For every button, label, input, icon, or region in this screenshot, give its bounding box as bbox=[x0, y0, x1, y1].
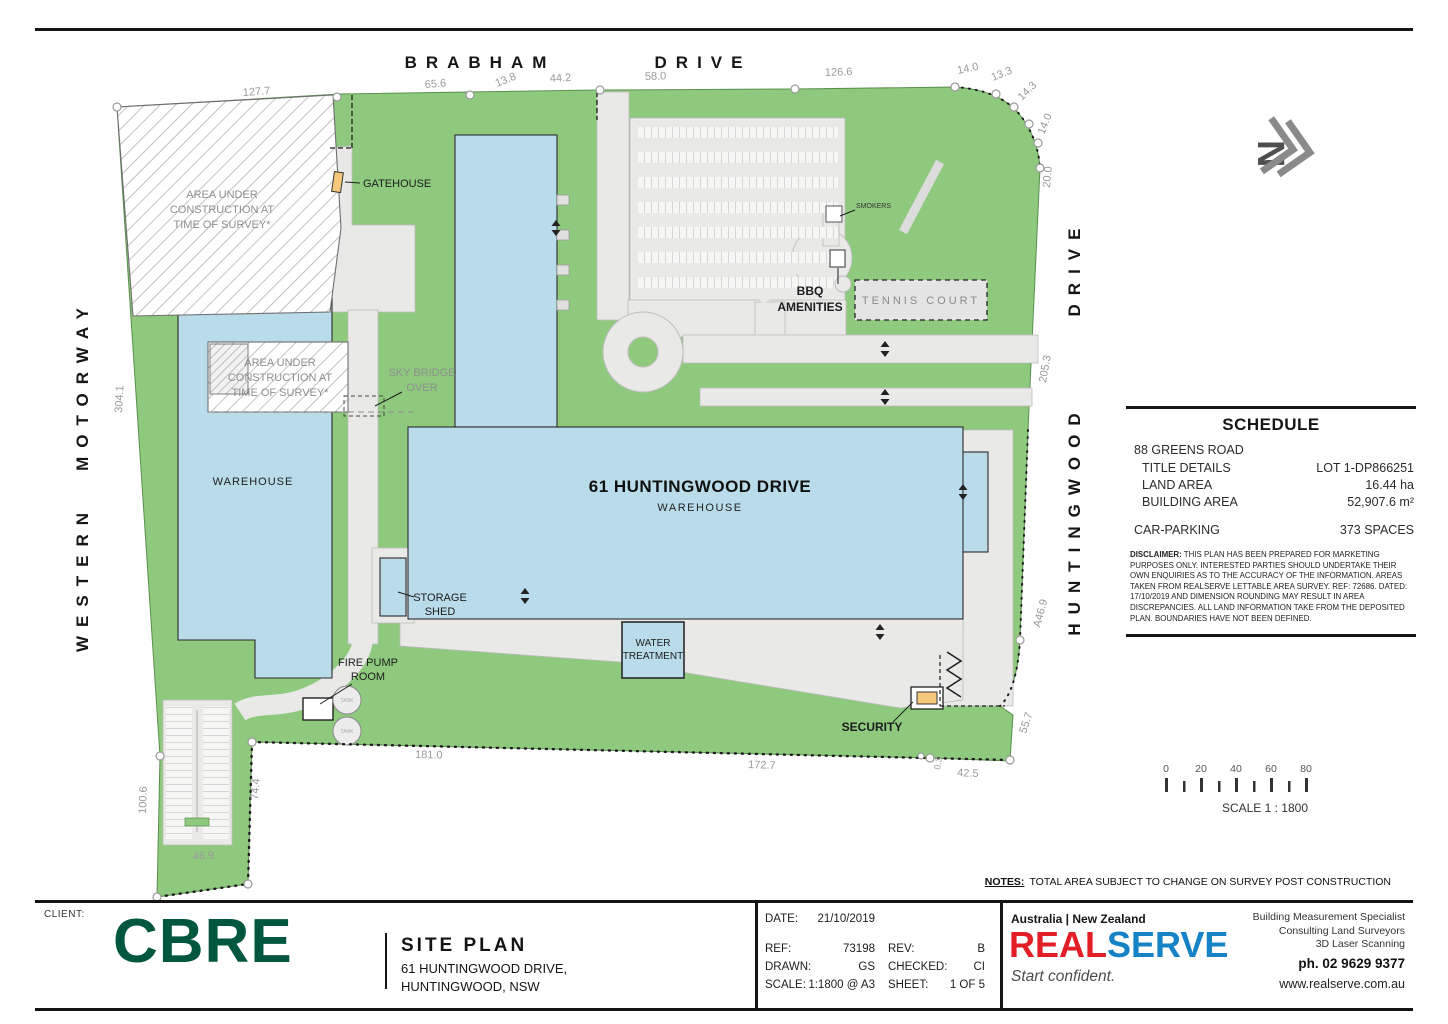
construction2-line1: AREA UNDER bbox=[244, 357, 316, 369]
fire-pump-room-shape bbox=[303, 698, 333, 720]
scale-tick-60: 60 bbox=[1265, 763, 1277, 775]
schedule-disclaimer: DISCLAIMER: THIS PLAN HAS BEEN PREPARED … bbox=[1128, 550, 1414, 624]
schedule-row-label: LAND AREA bbox=[1142, 477, 1212, 494]
dim-0-3: 0.3 bbox=[932, 756, 944, 770]
schedule-row-car-parking: CAR-PARKING 373 SPACES bbox=[1128, 523, 1414, 537]
street-motorway: MOTORWAY bbox=[73, 299, 92, 471]
drawn-value: GS bbox=[793, 961, 875, 973]
tank-label-1: TANK bbox=[341, 698, 355, 704]
street-huntingwood: HUNTINGWOOD bbox=[1065, 404, 1084, 635]
realserve-service-2: Consulting Land Surveyors bbox=[1253, 925, 1405, 939]
realserve-service-3: 3D Laser Scanning bbox=[1253, 938, 1405, 952]
storage-shed-label-2: SHED bbox=[425, 606, 456, 618]
schedule-row-building-area: BUILDING AREA 52,907.6 m² bbox=[1128, 494, 1414, 511]
construction2-line3: TIME OF SURVEY* bbox=[232, 387, 330, 399]
tank-label-2: TANK bbox=[341, 729, 355, 735]
scale-tick-0: 0 bbox=[1163, 763, 1169, 775]
divider bbox=[385, 933, 387, 989]
dim-100-6: 100.6 bbox=[137, 786, 150, 814]
parking-bottom-left bbox=[166, 706, 229, 839]
dim-42-5: 42.5 bbox=[957, 767, 979, 780]
schedule-panel: SCHEDULE 88 GREENS ROAD TITLE DETAILS LO… bbox=[1126, 406, 1416, 637]
roundabout bbox=[603, 312, 683, 392]
dim-181-0: 181.0 bbox=[415, 749, 443, 761]
realserve-tagline: Start confident. bbox=[1011, 968, 1115, 986]
sky-bridge-label-1: SKY BRIDGE bbox=[388, 367, 455, 379]
dim-20-0: 20.0 bbox=[1041, 166, 1055, 188]
dim-205-3: 205.3 bbox=[1037, 354, 1054, 383]
bbq-label-1: BBQ bbox=[797, 284, 824, 298]
construction2-line2: CONSTRUCTION AT bbox=[228, 372, 333, 384]
client-label: CLIENT: bbox=[44, 909, 85, 920]
date-value: 21/10/2019 bbox=[793, 913, 875, 925]
sky-bridge-label-2: OVER bbox=[406, 382, 437, 394]
dim-126-6: 126.6 bbox=[825, 66, 853, 79]
realserve-logo-real: REAL bbox=[1009, 924, 1107, 965]
scale-field-value: 1:1800 @ A3 bbox=[793, 979, 875, 991]
schedule-row-title-details: TITLE DETAILS LOT 1-DP866251 bbox=[1128, 460, 1414, 477]
bbq-label-2: AMENITIES bbox=[777, 300, 842, 314]
dim-46-9: 46.9 bbox=[192, 850, 214, 863]
divider bbox=[1000, 903, 1003, 1008]
scale-tick-20: 20 bbox=[1195, 763, 1207, 775]
street-brabham: BRABHAM bbox=[405, 53, 556, 72]
schedule-row-label: TITLE DETAILS bbox=[1142, 460, 1231, 477]
security-label: SECURITY bbox=[842, 720, 903, 734]
sheet-value: 1 OF 5 bbox=[915, 979, 985, 991]
scale-label: SCALE 1 : 1800 bbox=[1222, 801, 1308, 815]
rev-label: REV: bbox=[888, 943, 914, 955]
dim-172-7: 172.7 bbox=[748, 759, 776, 772]
ref-label: REF: bbox=[765, 943, 791, 955]
dim-127-7: 127.7 bbox=[242, 85, 270, 99]
tennis-court-label: TENNIS COURT bbox=[862, 295, 980, 307]
north-arrow-icon: N bbox=[1249, 118, 1315, 179]
dim-55-7: 55.7 bbox=[1017, 711, 1035, 735]
fire-pump-label-1: FIRE PUMP bbox=[338, 657, 398, 669]
realserve-phone: ph. 02 9629 9377 bbox=[1298, 956, 1405, 971]
realserve-services: Building Measurement Specialist Consulti… bbox=[1253, 911, 1405, 952]
storage-shed-shape bbox=[380, 558, 406, 616]
checked-value: CI bbox=[915, 961, 985, 973]
schedule-parking-value: 373 SPACES bbox=[1340, 523, 1414, 537]
schedule-row-value: 16.44 ha bbox=[1365, 477, 1414, 494]
notes-label: NOTES: bbox=[985, 876, 1025, 888]
disclaimer-label: DISCLAIMER: bbox=[1130, 550, 1182, 559]
plan-address-2: HUNTINGWOOD, NSW bbox=[401, 979, 540, 994]
realserve-website: www.realserve.com.au bbox=[1279, 977, 1405, 991]
dim-74-4: 74.4 bbox=[249, 778, 262, 800]
smokers-shape bbox=[826, 206, 842, 222]
notes-line: NOTES:TOTAL AREA SUBJECT TO CHANGE ON SU… bbox=[985, 876, 1391, 888]
schedule-row-land-area: LAND AREA 16.44 ha bbox=[1128, 477, 1414, 494]
schedule-title: SCHEDULE bbox=[1128, 415, 1414, 435]
dim-13-8: 13.8 bbox=[494, 71, 518, 90]
ref-value: 73198 bbox=[793, 943, 875, 955]
schedule-row-value: LOT 1-DP866251 bbox=[1316, 460, 1414, 477]
street-western: WESTERN bbox=[73, 504, 92, 652]
dim-14-3: 14.3 bbox=[1016, 79, 1040, 103]
divider bbox=[755, 903, 758, 1008]
fire-pump-label-2: ROOM bbox=[351, 671, 385, 683]
rev-value: B bbox=[915, 943, 985, 955]
dim-44-2: 44.2 bbox=[550, 72, 572, 85]
dim-58-0: 58.0 bbox=[645, 70, 667, 83]
schedule-row-value: 52,907.6 m² bbox=[1347, 494, 1414, 511]
main-warehouse-wing bbox=[455, 135, 557, 427]
notes-text: TOTAL AREA SUBJECT TO CHANGE ON SURVEY P… bbox=[1029, 876, 1391, 888]
dim-65-6: 65.6 bbox=[424, 78, 446, 91]
main-warehouse-shape bbox=[408, 427, 963, 619]
disclaimer-text: THIS PLAN HAS BEEN PREPARED FOR MARKETIN… bbox=[1130, 550, 1407, 623]
construction1-line1: AREA UNDER bbox=[186, 189, 258, 201]
left-warehouse-label: WAREHOUSE bbox=[213, 476, 294, 488]
construction1-line2: CONSTRUCTION AT bbox=[170, 204, 275, 216]
realserve-logo-serve: SERVE bbox=[1107, 924, 1228, 965]
storage-shed-label-1: STORAGE bbox=[413, 592, 467, 604]
realserve-service-1: Building Measurement Specialist bbox=[1253, 911, 1405, 925]
street-drive-right: DRIVE bbox=[1065, 220, 1084, 317]
water-treatment-label-2: TREATMENT bbox=[623, 651, 683, 662]
main-building-title: 61 HUNTINGWOOD DRIVE bbox=[589, 477, 812, 496]
schedule-parking-label: CAR-PARKING bbox=[1134, 523, 1220, 537]
security-shape bbox=[911, 687, 943, 709]
cbre-logo: CBRE bbox=[113, 911, 293, 973]
schedule-row-label: BUILDING AREA bbox=[1142, 494, 1238, 511]
realserve-logo: REALSERVE bbox=[1009, 927, 1228, 963]
dim-304-1: 304.1 bbox=[113, 385, 126, 413]
main-warehouse-east-bump bbox=[960, 452, 988, 552]
scale-tick-80: 80 bbox=[1300, 763, 1312, 775]
smokers-label: SMOKERS bbox=[856, 203, 891, 210]
schedule-address: 88 GREENS ROAD bbox=[1134, 443, 1414, 457]
dim-14-0a: 14.0 bbox=[956, 61, 979, 77]
dim-13-3: 13.3 bbox=[990, 65, 1014, 84]
dim-A46-9: A46.9 bbox=[1031, 598, 1050, 629]
gatehouse-label: GATEHOUSE bbox=[363, 178, 431, 190]
dim-14-0b: 14.0 bbox=[1036, 112, 1055, 136]
water-treatment-shape bbox=[622, 622, 684, 678]
plan-title: SITE PLAN bbox=[401, 935, 527, 957]
construction1-line3: TIME OF SURVEY* bbox=[174, 219, 272, 231]
main-building-subtitle: WAREHOUSE bbox=[657, 502, 742, 514]
scale-bar: 0 20 40 60 80 SCALE 1 : 1800 bbox=[1163, 763, 1312, 815]
water-treatment-label-1: WATER bbox=[636, 638, 671, 649]
plan-address-1: 61 HUNTINGWOOD DRIVE, bbox=[401, 961, 567, 976]
title-block: CLIENT: CBRE SITE PLAN 61 HUNTINGWOOD DR… bbox=[35, 900, 1413, 1011]
scale-tick-40: 40 bbox=[1230, 763, 1242, 775]
site-plan-document: TANK TANK bbox=[0, 0, 1448, 1024]
street-drive-top: DRIVE bbox=[655, 53, 752, 72]
